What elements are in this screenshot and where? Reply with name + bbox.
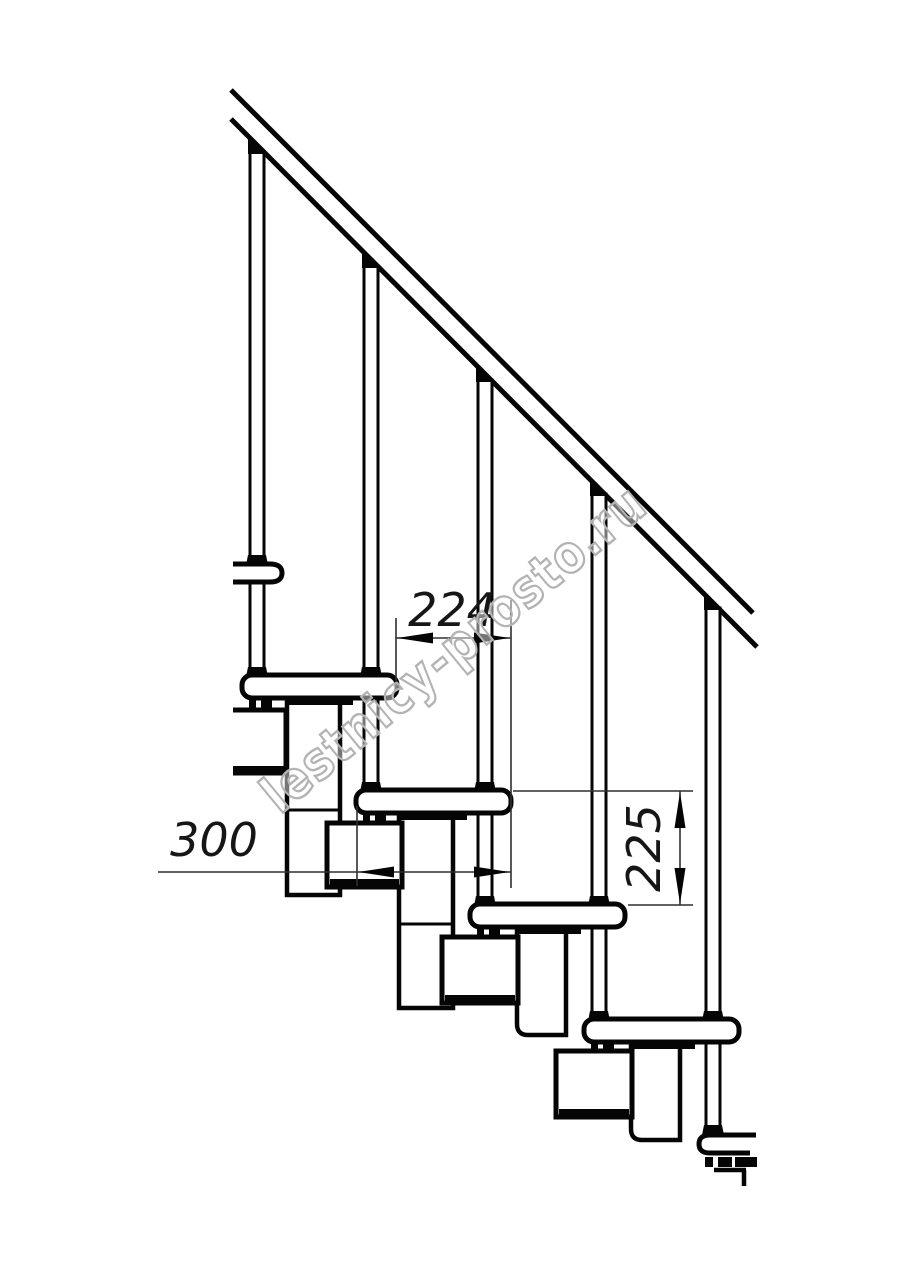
baluster-2-foot-collar (360, 782, 382, 792)
module-box-4-base (559, 1109, 629, 1117)
baluster-5 (706, 608, 720, 1133)
module-box-3-base (445, 995, 515, 1003)
baluster-5-foot-collar (702, 1125, 724, 1135)
baluster-1-pass-collar (246, 555, 268, 565)
baluster-4-foot-collar (588, 1011, 610, 1021)
step-5-fragment (699, 1135, 756, 1153)
module-tube-3 (517, 929, 566, 1035)
step-2 (356, 790, 511, 813)
step-4 (584, 1019, 739, 1042)
step-3 (470, 904, 625, 927)
module-box-5-fragment (714, 1170, 746, 1186)
baluster-3-foot-collar (474, 896, 496, 906)
dimension-300-label: 300 (170, 813, 258, 867)
module-box-4 (556, 1051, 632, 1117)
step-0-nose-fragment (233, 564, 282, 582)
handrail-bottom-line (231, 119, 757, 647)
step-5-mounts (705, 1157, 757, 1167)
baluster-5-pass-collar (702, 1011, 724, 1021)
dim-arrow-up (675, 792, 686, 828)
baluster-4-pass-collar (588, 896, 610, 906)
drawing-svg: 224 300 225 lestnicy-prosto.ru (0, 0, 914, 1280)
module-box-2 (327, 823, 402, 887)
baluster-1 (250, 152, 264, 675)
dim-arrow-down (675, 868, 686, 904)
staircase-drawing: 224 300 225 lestnicy-prosto.ru (0, 0, 914, 1280)
module-box-2-base (330, 879, 399, 887)
dimension-225-label: 225 (617, 804, 671, 892)
module-box-3 (442, 937, 518, 1003)
module-tube-4 (631, 1043, 680, 1140)
baluster-3-pass-collar (474, 782, 496, 792)
baluster-1-foot-collar (246, 667, 268, 677)
